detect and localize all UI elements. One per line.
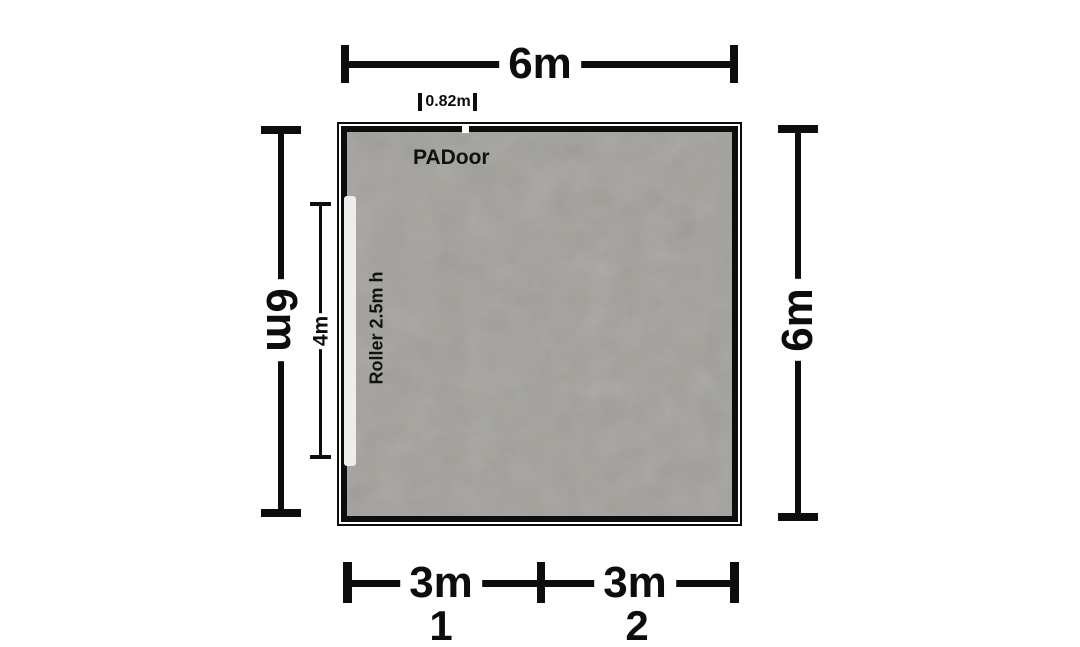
bottom-segment-2-label: 3m [594,561,676,605]
roller-door-strip [344,196,356,466]
right-height-label: 6m [776,279,820,361]
concrete-floor-texture [347,132,732,516]
pa-door-label: PADoor [413,146,490,170]
top-width-label: 6m [499,42,581,86]
bottom-segment-1-number: 1 [429,605,452,647]
bottom-segment-2-number: 2 [625,605,648,647]
pa-door-opening [462,126,469,133]
roller-door-label: Roller 2.5m h [367,271,388,384]
room: PADoor Roller 2.5m h [341,126,738,522]
roller-length-label: 4m [307,313,336,349]
floorplan-canvas: 6m 0.82m 6m 6m 4m PADoor [0,0,1080,647]
bottom-segment-1-label: 3m [400,561,482,605]
left-height-label: 6m [259,279,303,361]
door-width-label: 0.82m [423,94,472,110]
door-width-left-tick [418,93,422,111]
door-width-right-tick [473,93,477,111]
